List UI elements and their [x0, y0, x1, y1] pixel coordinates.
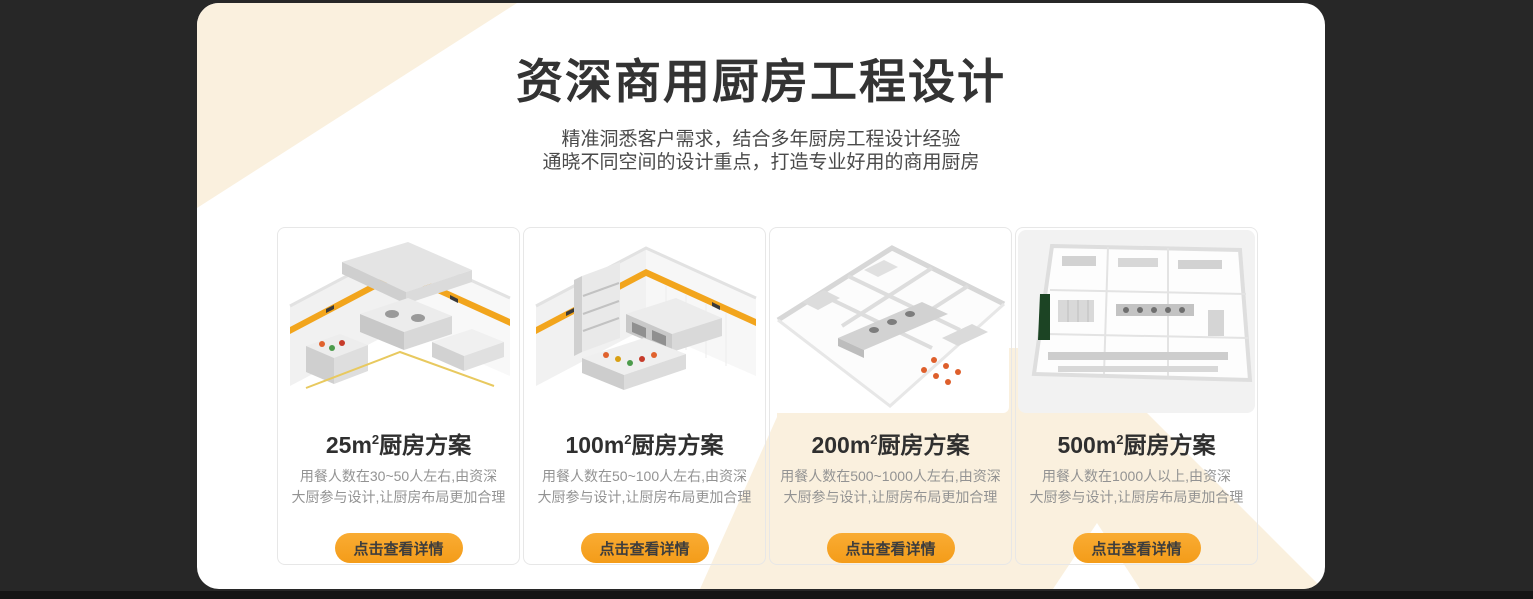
plan-area: 500m	[1057, 432, 1116, 458]
plan-description: 用餐人数在30~50人左右,由资深大厨参与设计,让厨房布局更加合理	[278, 466, 519, 508]
plan-title-suffix: 厨房方案	[379, 432, 471, 458]
plan-area: 200m	[811, 432, 870, 458]
plan-description-line2: 大厨参与设计,让厨房布局更加合理	[1030, 489, 1244, 505]
footer-strip	[0, 591, 1533, 599]
plan-description: 用餐人数在1000人以上,由资深大厨参与设计,让厨房布局更加合理	[1016, 466, 1257, 508]
plan-title-suffix: 厨房方案	[1124, 432, 1216, 458]
page-title: 资深商用厨房工程设计	[197, 53, 1325, 111]
plan-card-500sqm: 500m2厨房方案 用餐人数在1000人以上,由资深大厨参与设计,让厨房布局更加…	[1015, 227, 1258, 565]
content-panel: 资深商用厨房工程设计 精准洞悉客户需求，结合多年厨房工程设计经验 通晓不同空间的…	[197, 3, 1325, 589]
plan-title-suffix: 厨房方案	[632, 432, 724, 458]
plan-title: 100m2厨房方案	[524, 426, 765, 460]
plan-area-sup: 2	[1116, 432, 1123, 447]
view-details-button-200sqm[interactable]: 点击查看详情	[827, 533, 955, 563]
view-details-button-500sqm[interactable]: 点击查看详情	[1073, 533, 1201, 563]
plan-title: 25m2厨房方案	[278, 426, 519, 460]
kitchen-render-200sqm	[772, 230, 1009, 413]
kitchen-render-25sqm	[280, 230, 517, 413]
section-header: 资深商用厨房工程设计 精准洞悉客户需求，结合多年厨房工程设计经验 通晓不同空间的…	[197, 3, 1325, 174]
plan-area-sup: 2	[624, 432, 631, 447]
plan-description: 用餐人数在50~100人左右,由资深大厨参与设计,让厨房布局更加合理	[524, 466, 765, 508]
kitchen-render-100sqm	[526, 230, 763, 413]
plan-title: 500m2厨房方案	[1016, 426, 1257, 460]
plan-cards: 25m2厨房方案 用餐人数在30~50人左右,由资深大厨参与设计,让厨房布局更加…	[277, 227, 1258, 565]
view-details-button-100sqm[interactable]: 点击查看详情	[581, 533, 709, 563]
plan-description-line2: 大厨参与设计,让厨房布局更加合理	[538, 489, 752, 505]
section-subtitle-line2: 通晓不同空间的设计重点，打造专业好用的商用厨房	[197, 151, 1325, 174]
plan-card-200sqm: 200m2厨房方案 用餐人数在500~1000人左右,由资深大厨参与设计,让厨房…	[769, 227, 1012, 565]
plan-area-sup: 2	[870, 432, 877, 447]
plan-card-100sqm: 100m2厨房方案 用餐人数在50~100人左右,由资深大厨参与设计,让厨房布局…	[523, 227, 766, 565]
kitchen-render-500sqm	[1018, 230, 1255, 413]
plan-title: 200m2厨房方案	[770, 426, 1011, 460]
plan-area: 100m	[565, 432, 624, 458]
view-details-button-25sqm[interactable]: 点击查看详情	[335, 533, 463, 563]
plan-description: 用餐人数在500~1000人左右,由资深大厨参与设计,让厨房布局更加合理	[770, 466, 1011, 508]
plan-area: 25m	[326, 432, 372, 458]
plan-description-line1: 用餐人数在30~50人左右,由资深	[300, 468, 497, 484]
plan-title-suffix: 厨房方案	[878, 432, 970, 458]
plan-description-line1: 用餐人数在50~100人左右,由资深	[542, 468, 747, 484]
plan-card-25sqm: 25m2厨房方案 用餐人数在30~50人左右,由资深大厨参与设计,让厨房布局更加…	[277, 227, 520, 565]
plan-description-line2: 大厨参与设计,让厨房布局更加合理	[784, 489, 998, 505]
plan-description-line1: 用餐人数在500~1000人左右,由资深	[780, 468, 1001, 484]
section-subtitle-line1: 精准洞悉客户需求，结合多年厨房工程设计经验	[197, 128, 1325, 151]
plan-description-line1: 用餐人数在1000人以上,由资深	[1042, 468, 1231, 484]
plan-description-line2: 大厨参与设计,让厨房布局更加合理	[292, 489, 506, 505]
